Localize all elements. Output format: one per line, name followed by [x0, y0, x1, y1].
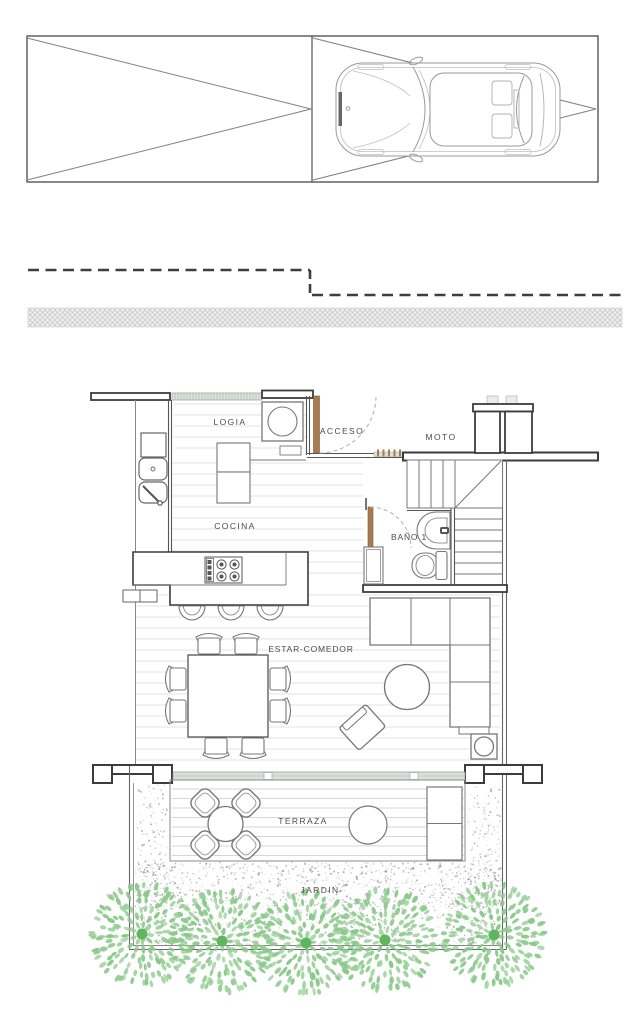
entry-door — [314, 396, 377, 453]
cooktop — [205, 557, 242, 583]
round-lounger — [349, 806, 387, 844]
side-table — [471, 734, 497, 759]
label-estar-comedor: ESTAR-COMEDOR — [268, 644, 353, 654]
label-bano1: BAÑO 1 — [391, 532, 427, 542]
coffee-table — [385, 665, 430, 710]
label-acceso: ACCESO — [320, 426, 364, 436]
washbasin — [417, 512, 450, 549]
washing-machine — [262, 402, 303, 455]
label-terraza: TERRAZA — [278, 816, 327, 826]
sliding-door — [173, 772, 465, 780]
toilet — [412, 552, 447, 580]
label-jardin: JARDIN — [300, 885, 339, 895]
shower-cabinet — [364, 547, 383, 584]
garden-trees — [88, 881, 547, 996]
label-logia: LOGIA — [214, 417, 247, 427]
floor-plan-page: LOGIA ACCESO MOTO COCINA BAÑO 1 ESTAR-CO… — [0, 0, 636, 1024]
column-left — [93, 765, 172, 783]
car-top-view — [336, 56, 560, 164]
terrace-set — [188, 786, 263, 862]
label-cocina: COCINA — [214, 521, 255, 531]
outdoor-sink — [139, 433, 167, 505]
bathroom — [364, 512, 450, 584]
label-moto: MOTO — [426, 432, 457, 442]
house-plan: LOGIA ACCESO MOTO COCINA BAÑO 1 ESTAR-CO… — [88, 391, 598, 996]
outdoor-sofa — [427, 787, 462, 860]
property-boundary-dashed — [28, 270, 622, 295]
armchair — [339, 704, 386, 750]
column-right — [465, 765, 542, 783]
floor-plan-drawing: LOGIA ACCESO MOTO COCINA BAÑO 1 ESTAR-CO… — [0, 0, 636, 1024]
kitchen-island — [123, 552, 308, 620]
sofa-set — [339, 598, 497, 759]
sidewalk-hatch — [28, 308, 622, 327]
parking-area — [27, 36, 598, 182]
bar-stools — [179, 606, 283, 620]
